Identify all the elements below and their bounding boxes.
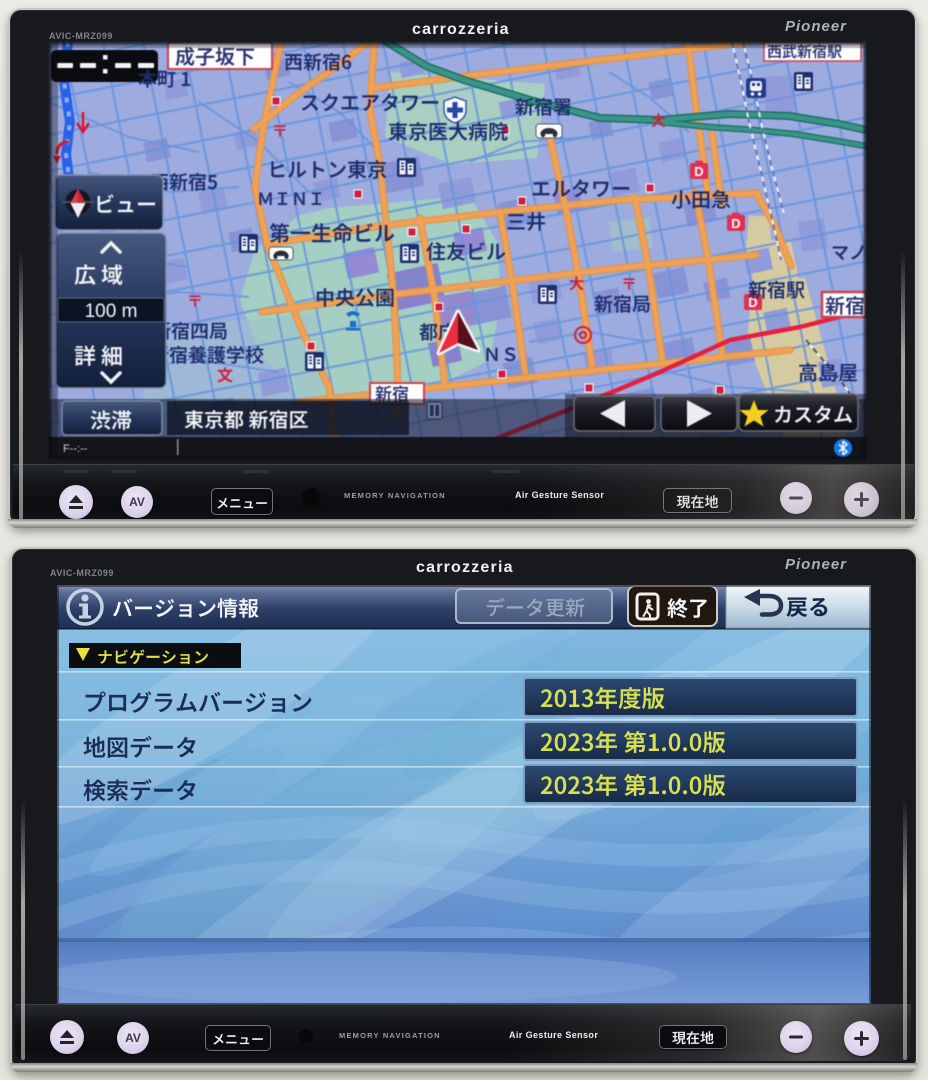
svg-text:100 m: 100 m bbox=[85, 301, 138, 322]
svg-text:D: D bbox=[694, 164, 703, 179]
svg-text:F--:--: F--:-- bbox=[63, 443, 88, 455]
svg-text:D: D bbox=[731, 216, 740, 231]
